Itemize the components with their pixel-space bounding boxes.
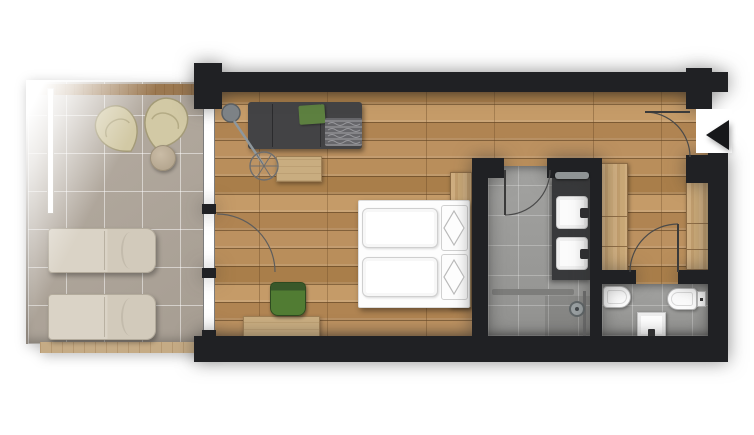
door-jamb-terrace-bottom [202,268,216,278]
towel-rail [555,172,589,179]
floor-plan [0,0,754,435]
wall-bedroom-bath [472,160,488,336]
walls [0,0,754,435]
wall-wc-right [678,270,710,284]
entrance-arrow-icon [706,120,729,150]
wall-right [708,153,728,362]
pillar-top-left [194,63,222,109]
wall-wc-left [602,270,636,284]
wall-bath-top-left [472,158,504,178]
wall-bath-wc [590,158,602,336]
wall-window-end [202,330,216,338]
wall-bottom [194,336,728,362]
entry-jamb-top [686,68,712,109]
wall-top [194,72,704,92]
door-jamb-terrace-top [202,204,216,214]
